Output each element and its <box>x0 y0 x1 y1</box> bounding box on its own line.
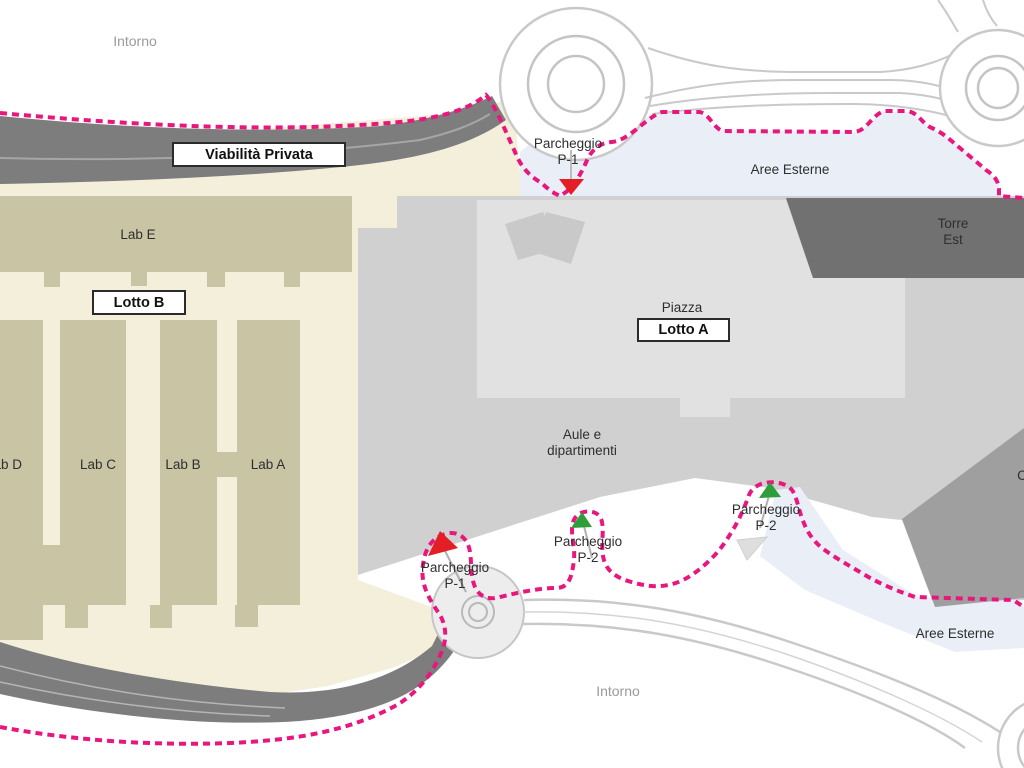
site-plan-map: Intorno Viabilità Privata Parcheggio P-1… <box>0 0 1024 768</box>
wing-stub-1 <box>65 605 88 628</box>
label-torre-est: Torre Est <box>925 216 981 248</box>
label-aule-dipartimenti: Aule e dipartimenti <box>528 427 636 459</box>
label-intorno-bottom: Intorno <box>583 683 653 699</box>
roundabout-northeast <box>940 30 1024 146</box>
torre-est-building <box>786 198 1024 278</box>
label-parcheggio-p2-right: Parcheggio P-2 <box>720 502 812 534</box>
label-lab-a: Lab A <box>238 457 298 473</box>
lab-d-wing <box>0 320 43 640</box>
wing-stub-3 <box>235 605 258 627</box>
label-lab-b: Lab B <box>153 457 213 473</box>
label-lab-e: Lab E <box>108 227 168 243</box>
north-corridor-line-3 <box>650 93 970 110</box>
label-intorno-top: Intorno <box>100 33 170 49</box>
northeast-entry-arc-1 <box>938 0 958 32</box>
north-corridor-line-1 <box>648 46 965 72</box>
northeast-entry-arc-2 <box>983 0 997 26</box>
map-canvas <box>0 0 1024 768</box>
roundabout-southeast-ring <box>1018 718 1024 768</box>
wing-bridge-dc <box>43 545 60 605</box>
lab-e-tab-1 <box>44 272 60 287</box>
label-viabilita-privata: Viabilità Privata <box>172 142 346 167</box>
lab-e-building <box>0 196 352 272</box>
label-parcheggio-p1-north: Parcheggio P-1 <box>523 136 613 168</box>
label-lotto-b: Lotto B <box>92 290 186 315</box>
label-partial-east: C <box>1012 468 1024 484</box>
label-aree-esterne-north: Aree Esterne <box>735 162 845 178</box>
label-parcheggio-p1-south: Parcheggio P-1 <box>410 560 500 592</box>
wing-stub-2 <box>150 605 172 628</box>
label-piazza: Piazza <box>652 300 712 316</box>
label-parcheggio-p2-mid: Parcheggio P-2 <box>543 534 633 566</box>
label-lab-c: Lab C <box>68 457 128 473</box>
label-lotto-a: Lotto A <box>637 318 730 342</box>
lab-e-tab-2 <box>131 272 147 286</box>
lab-e-tab-3 <box>207 272 225 287</box>
wing-bridge-ba <box>217 452 237 477</box>
label-lab-d: Lab D <box>0 457 34 473</box>
label-aree-esterne-south: Aree Esterne <box>900 626 1010 642</box>
lab-e-tab-4 <box>284 272 300 287</box>
